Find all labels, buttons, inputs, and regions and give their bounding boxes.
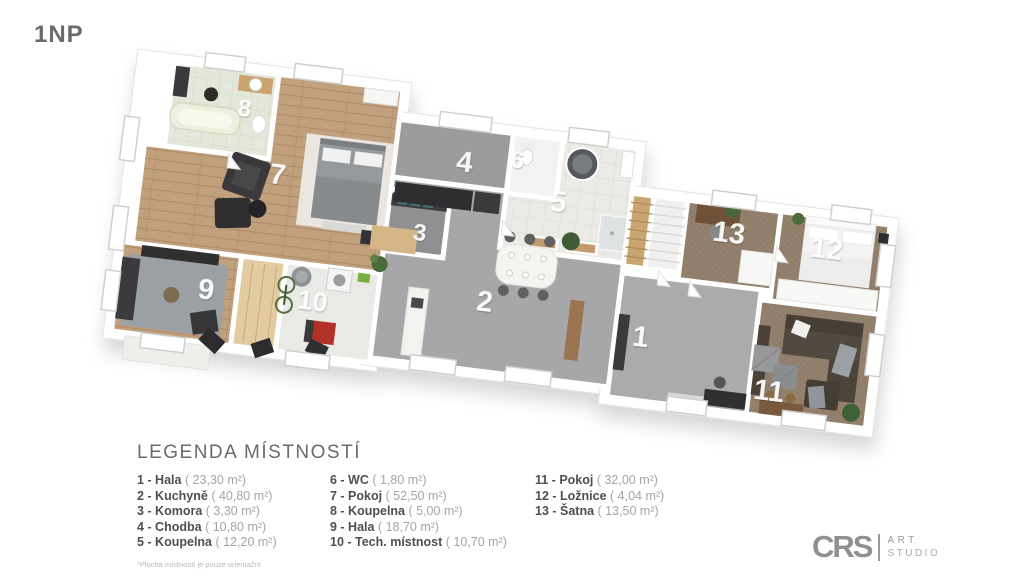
kitchen-block <box>473 191 501 214</box>
page: 1NP <box>0 0 1024 576</box>
legend-item: 2 - Kuchyně ( 40,80 m²) <box>137 489 330 505</box>
legend-item-label: 3 - Komora <box>137 504 202 518</box>
legend-item-area: ( 52,50 m²) <box>386 489 447 503</box>
legend-item: 1 - Hala ( 23,30 m²) <box>137 473 330 489</box>
legend-item-area: ( 23,30 m²) <box>185 473 246 487</box>
logo-text: ART STUDIO <box>887 534 940 560</box>
legend-item-area: ( 40,80 m²) <box>211 489 272 503</box>
legend-item-label: 7 - Pokoj <box>330 489 382 503</box>
room-13-label: 13 <box>711 216 747 252</box>
studio-logo: CRS ART STUDIO <box>812 533 940 561</box>
logo-brand: CRS <box>812 533 871 561</box>
legend-item: 13 - Šatna ( 13,50 m²) <box>535 504 728 520</box>
legend-item: 11 - Pokoj ( 32,00 m²) <box>535 473 728 489</box>
legend-item: 10 - Tech. místnost ( 10,70 m²) <box>330 535 535 551</box>
legend-item-label: 1 - Hala <box>137 473 181 487</box>
legend-title: LEGENDA MÍSTNOSTÍ <box>137 442 728 464</box>
room-12-label: 12 <box>809 232 845 268</box>
armchair <box>215 198 252 229</box>
logo-line-art: ART <box>887 534 940 547</box>
legend-item: 7 - Pokoj ( 52,50 m²) <box>330 489 535 505</box>
legend-item-label: 10 - Tech. místnost <box>330 535 442 549</box>
legend-item-label: 9 - Hala <box>330 520 374 534</box>
legend-footnote: *Plocha místností je pouze orientační <box>137 560 728 569</box>
legend-item-area: ( 18,70 m²) <box>378 520 439 534</box>
duvet <box>311 176 382 226</box>
legend-item-area: ( 1,80 m²) <box>372 473 426 487</box>
armchair <box>190 309 219 334</box>
legend: LEGENDA MÍSTNOSTÍ 1 - Hala ( 23,30 m²) 2… <box>137 442 728 569</box>
desk-chair <box>360 230 372 245</box>
room-11-label: 11 <box>752 374 786 409</box>
legend-item-area: ( 10,70 m²) <box>446 535 507 549</box>
legend-item: 5 - Koupelna ( 12,20 m²) <box>137 535 330 551</box>
legend-item: 6 - WC ( 1,80 m²) <box>330 473 535 489</box>
legend-column-2: 6 - WC ( 1,80 m²) 7 - Pokoj ( 52,50 m²) … <box>330 473 535 551</box>
legend-item: 3 - Komora ( 3,30 m²) <box>137 504 330 520</box>
legend-item-area: ( 32,00 m²) <box>597 473 658 487</box>
dining-table <box>494 243 558 290</box>
sink-counter <box>620 151 635 178</box>
legend-item-label: 11 - Pokoj <box>535 473 593 487</box>
logo-line-studio: STUDIO <box>887 547 940 560</box>
legend-columns: 1 - Hala ( 23,30 m²) 2 - Kuchyně ( 40,80… <box>137 473 728 551</box>
legend-item-area: ( 3,30 m²) <box>206 504 260 518</box>
legend-item: 8 - Koupelna ( 5,00 m²) <box>330 504 535 520</box>
legend-item: 4 - Chodba ( 10,80 m²) <box>137 520 330 536</box>
legend-item-area: ( 12,20 m²) <box>216 535 277 549</box>
legend-item-label: 4 - Chodba <box>137 520 202 534</box>
legend-item: 9 - Hala ( 18,70 m²) <box>330 520 535 536</box>
legend-item-label: 8 - Koupelna <box>330 504 405 518</box>
legend-item: 12 - Ložnice ( 4,04 m²) <box>535 489 728 505</box>
green-box <box>357 273 370 283</box>
blanket <box>808 386 826 409</box>
legend-item-area: ( 13,50 m²) <box>598 504 659 518</box>
legend-item-label: 5 - Koupelna <box>137 535 212 549</box>
legend-column-3: 11 - Pokoj ( 32,00 m²) 12 - Ložnice ( 4,… <box>535 473 728 551</box>
legend-column-1: 1 - Hala ( 23,30 m²) 2 - Kuchyně ( 40,80… <box>137 473 330 551</box>
legend-item-label: 6 - WC <box>330 473 369 487</box>
legend-item-area: ( 4,04 m²) <box>610 489 664 503</box>
legend-item-label: 2 - Kuchyně <box>137 489 208 503</box>
logo-divider <box>878 534 880 561</box>
white-cabinet <box>738 250 774 286</box>
legend-item-area: ( 5,00 m²) <box>409 504 463 518</box>
room-1-floor <box>607 273 761 414</box>
legend-item-area: ( 10,80 m²) <box>205 520 266 534</box>
room-10-label: 10 <box>296 285 329 318</box>
nightstand <box>878 233 889 244</box>
island-sink <box>411 297 424 308</box>
legend-item-label: 12 - Ložnice <box>535 489 607 503</box>
legend-item-label: 13 - Šatna <box>535 504 594 518</box>
